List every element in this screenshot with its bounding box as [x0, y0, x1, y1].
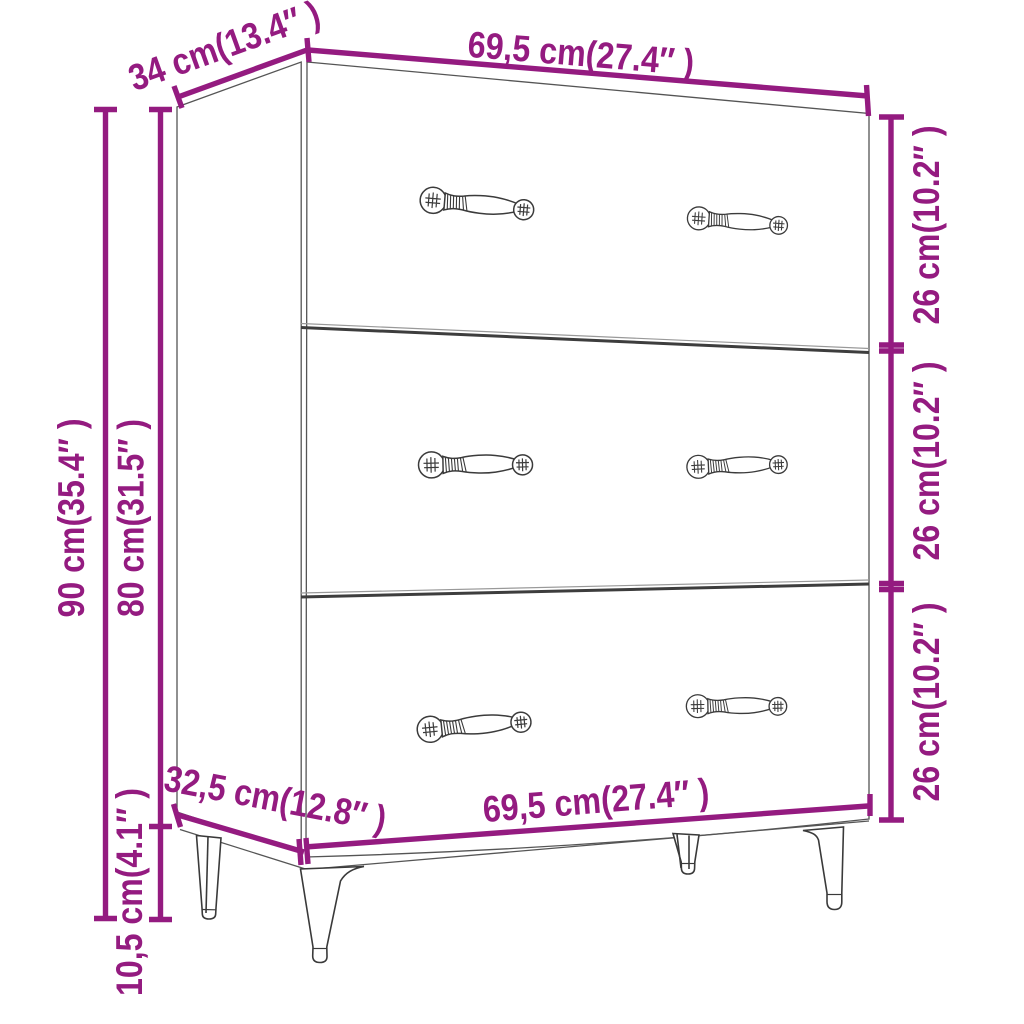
svg-text:26 cm(10.2″ ): 26 cm(10.2″ ) — [906, 362, 947, 561]
svg-text:10,5 cm(4.1″ ): 10,5 cm(4.1″ ) — [109, 788, 150, 996]
svg-text:26 cm(10.2″ ): 26 cm(10.2″ ) — [906, 126, 947, 325]
svg-text:26 cm(10.2″ ): 26 cm(10.2″ ) — [906, 603, 947, 802]
svg-text:90 cm(35.4″ ): 90 cm(35.4″ ) — [51, 419, 92, 618]
svg-text:80 cm(31.5″ ): 80 cm(31.5″ ) — [110, 419, 151, 617]
